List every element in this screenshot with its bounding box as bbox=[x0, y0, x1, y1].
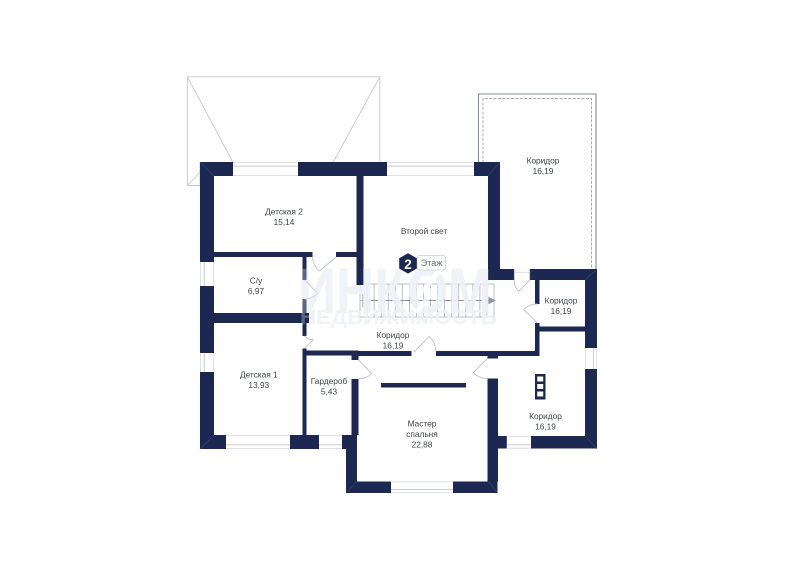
svg-text:Этаж: Этаж bbox=[421, 258, 443, 268]
svg-text:С/у6,97: С/у6,97 bbox=[248, 276, 265, 297]
svg-text:2: 2 bbox=[404, 257, 412, 272]
svg-text:НЕДВИЖИМОСТЬ: НЕДВИЖИМОСТЬ bbox=[300, 306, 497, 329]
svg-text:Второй свет: Второй свет bbox=[401, 226, 448, 236]
